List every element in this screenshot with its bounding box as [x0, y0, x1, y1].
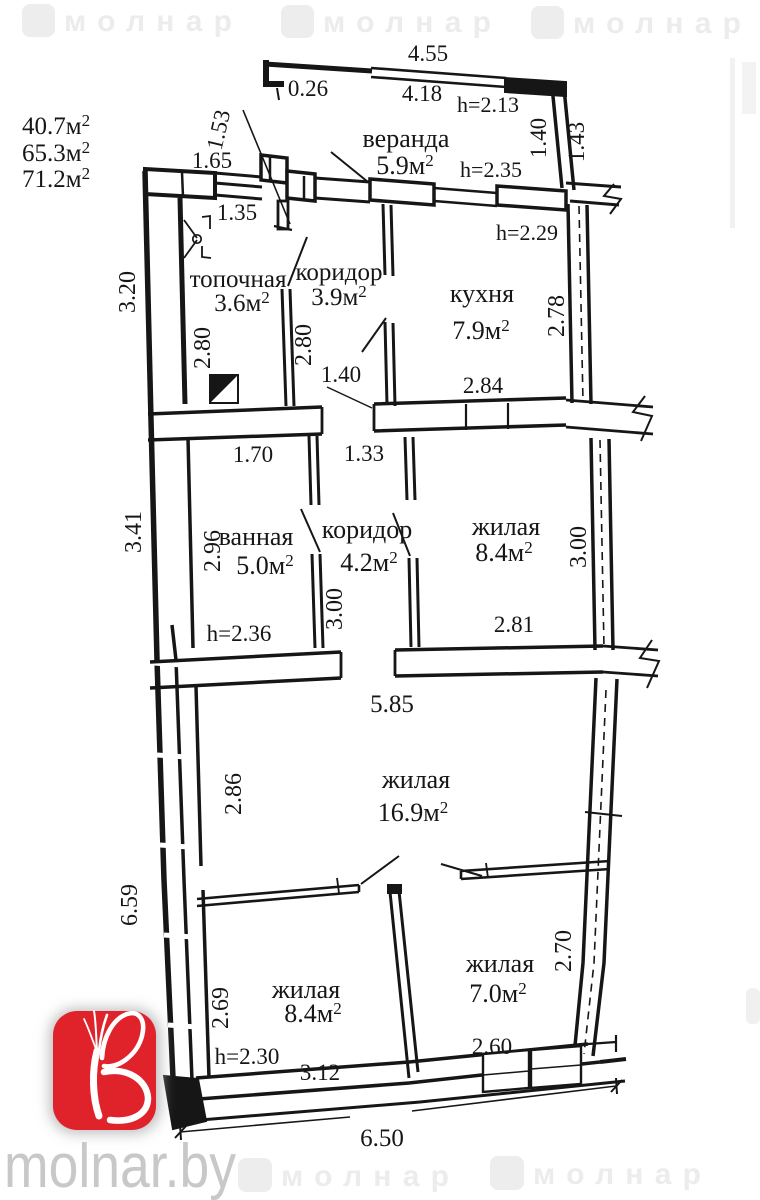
svg-text:жилая: жилая	[471, 512, 540, 541]
svg-text:4.18: 4.18	[402, 81, 442, 106]
svg-text:2.84: 2.84	[463, 373, 504, 398]
svg-text:веранда: веранда	[363, 124, 450, 153]
svg-text:2.96: 2.96	[200, 530, 226, 572]
svg-text:7.0м2: 7.0м2	[469, 979, 526, 1008]
svg-text:3.41: 3.41	[121, 511, 147, 553]
svg-text:5.9м2: 5.9м2	[376, 151, 433, 180]
svg-text:h=2.36: h=2.36	[207, 621, 272, 646]
svg-text:топочная: топочная	[190, 266, 287, 293]
svg-text:16.9м2: 16.9м2	[378, 798, 448, 827]
svg-text:2.70: 2.70	[551, 930, 577, 972]
svg-text:ванная: ванная	[219, 522, 294, 551]
svg-text:2.60: 2.60	[472, 1034, 512, 1059]
svg-text:71.2м2: 71.2м2	[22, 164, 90, 193]
svg-text:7.9м2: 7.9м2	[452, 316, 509, 345]
svg-text:жилая: жилая	[465, 949, 534, 978]
svg-text:4.2м2: 4.2м2	[340, 548, 397, 577]
svg-text:2.80: 2.80	[190, 327, 216, 369]
svg-text:0.26: 0.26	[288, 76, 328, 101]
svg-text:кухня: кухня	[450, 279, 514, 308]
svg-text:2.69: 2.69	[208, 987, 234, 1029]
svg-text:6.59: 6.59	[117, 884, 143, 926]
svg-text:1.40: 1.40	[526, 118, 551, 158]
svg-text:3.12: 3.12	[300, 1060, 340, 1085]
svg-text:коридор: коридор	[296, 259, 383, 286]
svg-text:6.50: 6.50	[360, 1125, 404, 1152]
svg-text:3.00: 3.00	[322, 588, 348, 630]
svg-text:1.33: 1.33	[344, 441, 384, 466]
svg-text:2.81: 2.81	[494, 612, 534, 637]
svg-text:h=2.13: h=2.13	[457, 92, 519, 117]
svg-text:65.3м2: 65.3м2	[22, 138, 90, 167]
svg-text:1.65: 1.65	[192, 148, 232, 173]
svg-text:1.43: 1.43	[564, 122, 589, 162]
svg-text:molnar.by: molnar.by	[4, 1132, 236, 1200]
svg-text:8.4м2: 8.4м2	[284, 999, 341, 1028]
svg-text:4.55: 4.55	[408, 41, 448, 66]
svg-text:8.4м2: 8.4м2	[475, 538, 532, 567]
svg-text:1.70: 1.70	[233, 442, 273, 467]
svg-text:2.80: 2.80	[291, 324, 317, 366]
svg-text:h=2.30: h=2.30	[215, 1044, 280, 1069]
svg-text:2.78: 2.78	[544, 295, 570, 337]
svg-text:3.00: 3.00	[566, 526, 592, 568]
svg-text:коридор: коридор	[322, 515, 412, 544]
svg-text:40.7м2: 40.7м2	[22, 111, 90, 140]
svg-text:1.35: 1.35	[217, 200, 257, 225]
svg-text:1.40: 1.40	[321, 362, 361, 387]
svg-text:h=2.35: h=2.35	[460, 157, 522, 182]
svg-text:5.0м2: 5.0м2	[236, 551, 293, 580]
svg-text:жилая: жилая	[381, 765, 450, 794]
svg-text:h=2.29: h=2.29	[496, 220, 558, 245]
svg-text:3.20: 3.20	[115, 271, 141, 313]
svg-text:2.86: 2.86	[221, 773, 247, 815]
svg-text:5.85: 5.85	[370, 691, 414, 718]
